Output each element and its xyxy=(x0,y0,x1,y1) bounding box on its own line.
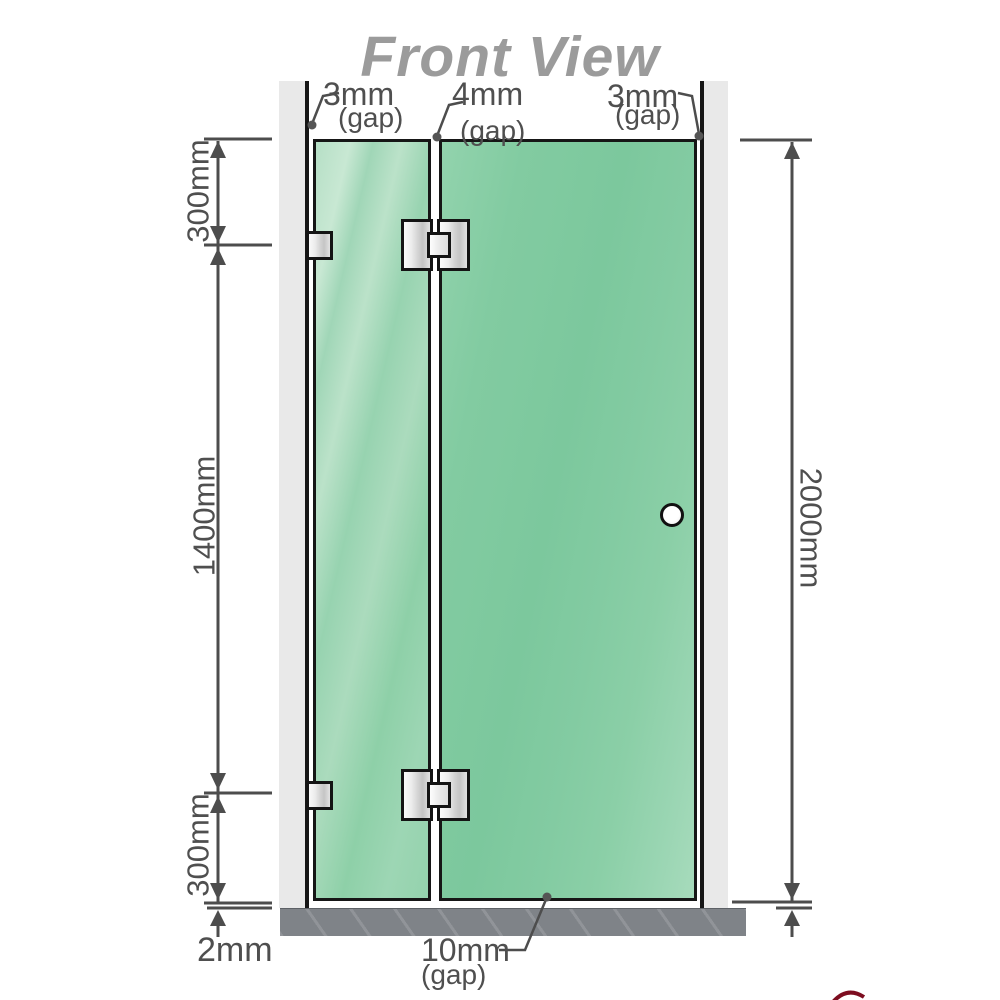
glass-hinge-bottom-icon xyxy=(401,769,470,821)
glass-hinge-top-icon xyxy=(401,219,470,271)
gap-label-top-middle-suffix: (gap) xyxy=(460,117,525,145)
dimension-label-bottom-300mm: 300mm xyxy=(183,793,214,896)
hinge-knuckle xyxy=(427,232,451,258)
dimension-label-2000mm: 2000mm xyxy=(796,468,827,589)
dimension-label-top-300mm: 300mm xyxy=(183,139,214,242)
shower-screen-front-view-diagram: Front View xyxy=(0,0,1000,1000)
gap-label-top-left-suffix: (gap) xyxy=(338,104,403,132)
wall-bracket-bottom-icon xyxy=(306,781,333,810)
dimension-label-middle-1400mm: 1400mm xyxy=(189,456,220,577)
dimension-label-2mm: 2mm xyxy=(197,933,273,967)
wall-bracket-top-icon xyxy=(306,231,333,260)
hinge-knuckle xyxy=(427,782,451,808)
left-wall xyxy=(279,81,309,908)
door-knob-icon xyxy=(660,503,684,527)
right-wall xyxy=(700,81,728,908)
gap-label-top-right-suffix: (gap) xyxy=(615,101,680,129)
glass-door-panel xyxy=(439,139,697,901)
gap-label-bottom-suffix: (gap) xyxy=(421,961,486,989)
floor-base xyxy=(280,908,746,936)
red-watermark-mark xyxy=(833,993,864,1000)
gap-label-top-middle-value: 4mm xyxy=(452,78,523,110)
